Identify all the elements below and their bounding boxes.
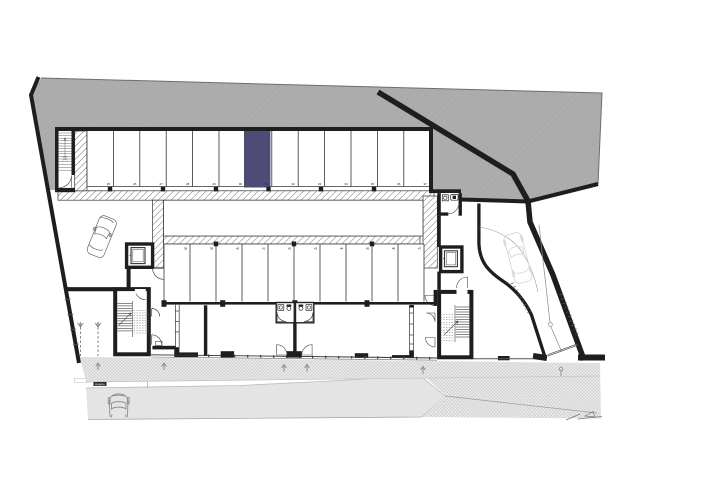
svg-text:31: 31 xyxy=(265,182,269,186)
svg-text:33: 33 xyxy=(318,182,322,186)
svg-text:35: 35 xyxy=(371,182,375,186)
svg-text:25: 25 xyxy=(107,182,111,186)
svg-text:29: 29 xyxy=(212,182,216,186)
svg-text:RAMPA: RAMPA xyxy=(95,382,105,386)
svg-text:27: 27 xyxy=(160,182,164,186)
svg-text:38: 38 xyxy=(184,247,188,251)
svg-text:26: 26 xyxy=(133,182,137,186)
svg-text:32: 32 xyxy=(292,182,296,186)
svg-text:45: 45 xyxy=(366,247,370,251)
svg-text:39: 39 xyxy=(210,247,214,251)
svg-text:34: 34 xyxy=(344,182,348,186)
svg-text:28: 28 xyxy=(186,182,190,186)
svg-text:44: 44 xyxy=(340,247,344,251)
svg-text:30: 30 xyxy=(239,182,243,186)
svg-text:41: 41 xyxy=(262,247,266,251)
svg-text:42: 42 xyxy=(288,247,292,251)
svg-text:37: 37 xyxy=(424,182,428,186)
svg-text:36: 36 xyxy=(397,182,401,186)
svg-text:40: 40 xyxy=(236,247,240,251)
svg-text:47: 47 xyxy=(418,247,422,251)
svg-text:46: 46 xyxy=(392,247,396,251)
svg-text:43: 43 xyxy=(314,247,318,251)
